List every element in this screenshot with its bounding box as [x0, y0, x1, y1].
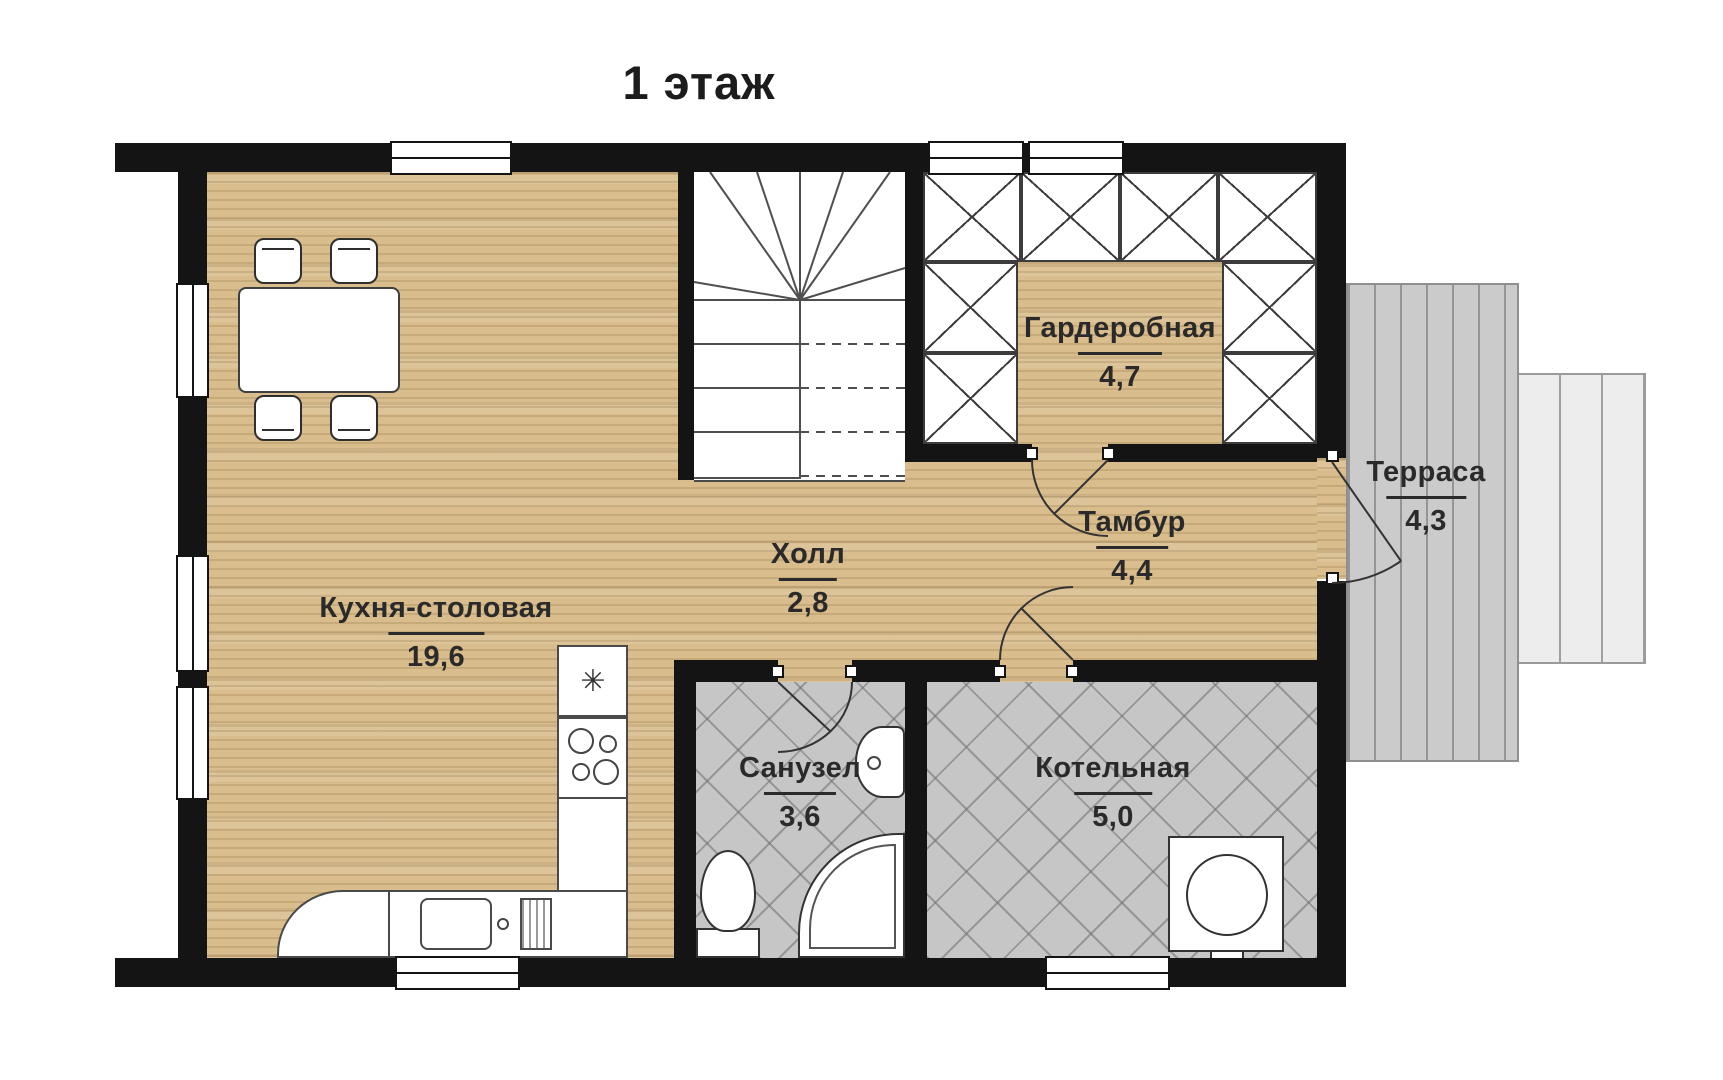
wardrobe-cabinet	[923, 172, 1021, 262]
dining-table	[238, 287, 400, 393]
kitchen-sink	[420, 898, 492, 950]
wardrobe-cabinet	[1218, 172, 1317, 262]
boiler	[1168, 836, 1284, 952]
room-name: Котельная	[1035, 752, 1190, 785]
door-jamb	[1326, 572, 1339, 585]
window	[395, 956, 520, 990]
room-label-rule	[1386, 496, 1466, 499]
page-title: 1 этаж	[499, 55, 899, 110]
terrace-steps	[1515, 373, 1646, 664]
room-label-boiler-room: Котельная 5,0	[1035, 752, 1190, 834]
window	[928, 141, 1024, 175]
room-label-rule	[1074, 792, 1152, 795]
wardrobe-cabinet	[1120, 172, 1218, 262]
room-label-rule	[388, 632, 484, 635]
room-name: Гардеробная	[1024, 312, 1216, 345]
room-name: Кухня-столовая	[319, 592, 552, 625]
room-label-wardrobe: Гардеробная 4,7	[1024, 312, 1216, 394]
wardrobe-cabinet	[1222, 262, 1317, 353]
wall-top	[115, 143, 1346, 172]
room-area: 4,7	[1024, 361, 1216, 394]
room-area: 3,6	[739, 801, 861, 834]
wall-hall-bottom-c	[1073, 660, 1317, 682]
room-label-terrace: Терраса 4,3	[1366, 456, 1485, 538]
terrace-door-threshold	[1317, 458, 1346, 579]
wall-right-lower	[1317, 581, 1346, 987]
window	[176, 686, 209, 800]
wardrobe-cabinet	[923, 262, 1018, 353]
door-jamb	[1066, 665, 1079, 678]
door-jamb	[845, 665, 858, 678]
room-area: 4,3	[1366, 505, 1485, 538]
door-jamb	[993, 665, 1006, 678]
door-jamb	[1025, 447, 1038, 460]
chair	[330, 395, 378, 441]
door-jamb	[771, 665, 784, 678]
wall-stairs-right	[905, 172, 923, 462]
room-area: 19,6	[319, 641, 552, 674]
room-label-bathroom: Санузел 3,6	[739, 752, 861, 834]
washbasin	[855, 726, 905, 798]
door-jamb	[1102, 447, 1115, 460]
floor-plan: 1 этаж ✳	[0, 0, 1723, 1080]
room-area: 5,0	[1035, 801, 1190, 834]
toilet	[700, 850, 756, 932]
window	[176, 555, 209, 672]
window	[1028, 141, 1124, 175]
fridge-snowflake-icon: ✳	[560, 650, 626, 714]
room-label-rule	[764, 792, 836, 795]
door-jamb	[1326, 449, 1339, 462]
room-name: Терраса	[1366, 456, 1485, 489]
room-label-kitchen-dining: Кухня-столовая 19,6	[319, 592, 552, 674]
sink-drainer	[520, 898, 552, 950]
room-label-rule	[1096, 546, 1168, 549]
room-label-rule	[779, 578, 837, 581]
room-label-hall: Холл 2,8	[771, 538, 845, 620]
room-area: 2,8	[771, 587, 845, 620]
wall-kitchen-bathroom	[674, 660, 696, 987]
window	[176, 283, 209, 398]
staircase	[694, 172, 905, 482]
toilet-tank	[696, 928, 760, 958]
window	[1045, 956, 1170, 990]
wall-right-upper	[1317, 143, 1346, 458]
room-name: Холл	[771, 538, 845, 571]
room-name: Санузел	[739, 752, 861, 785]
stove	[557, 717, 628, 799]
wall-wardrobe-bottom-b	[1108, 444, 1317, 462]
wardrobe-cabinet	[1021, 172, 1120, 262]
room-area: 4,4	[1078, 555, 1186, 588]
chair	[254, 395, 302, 441]
wardrobe-cabinet	[923, 353, 1018, 444]
room-label-tambour: Тамбур 4,4	[1078, 506, 1186, 588]
room-name: Тамбур	[1078, 506, 1186, 539]
chair	[330, 238, 378, 284]
chair	[254, 238, 302, 284]
window	[390, 141, 512, 175]
room-label-rule	[1078, 352, 1162, 355]
wall-wardrobe-bottom-a	[905, 444, 1032, 462]
wall-bathroom-boiler	[905, 660, 927, 987]
wall-stairs-left	[678, 172, 694, 480]
counter-divider	[388, 892, 390, 956]
wardrobe-cabinet	[1222, 353, 1317, 444]
